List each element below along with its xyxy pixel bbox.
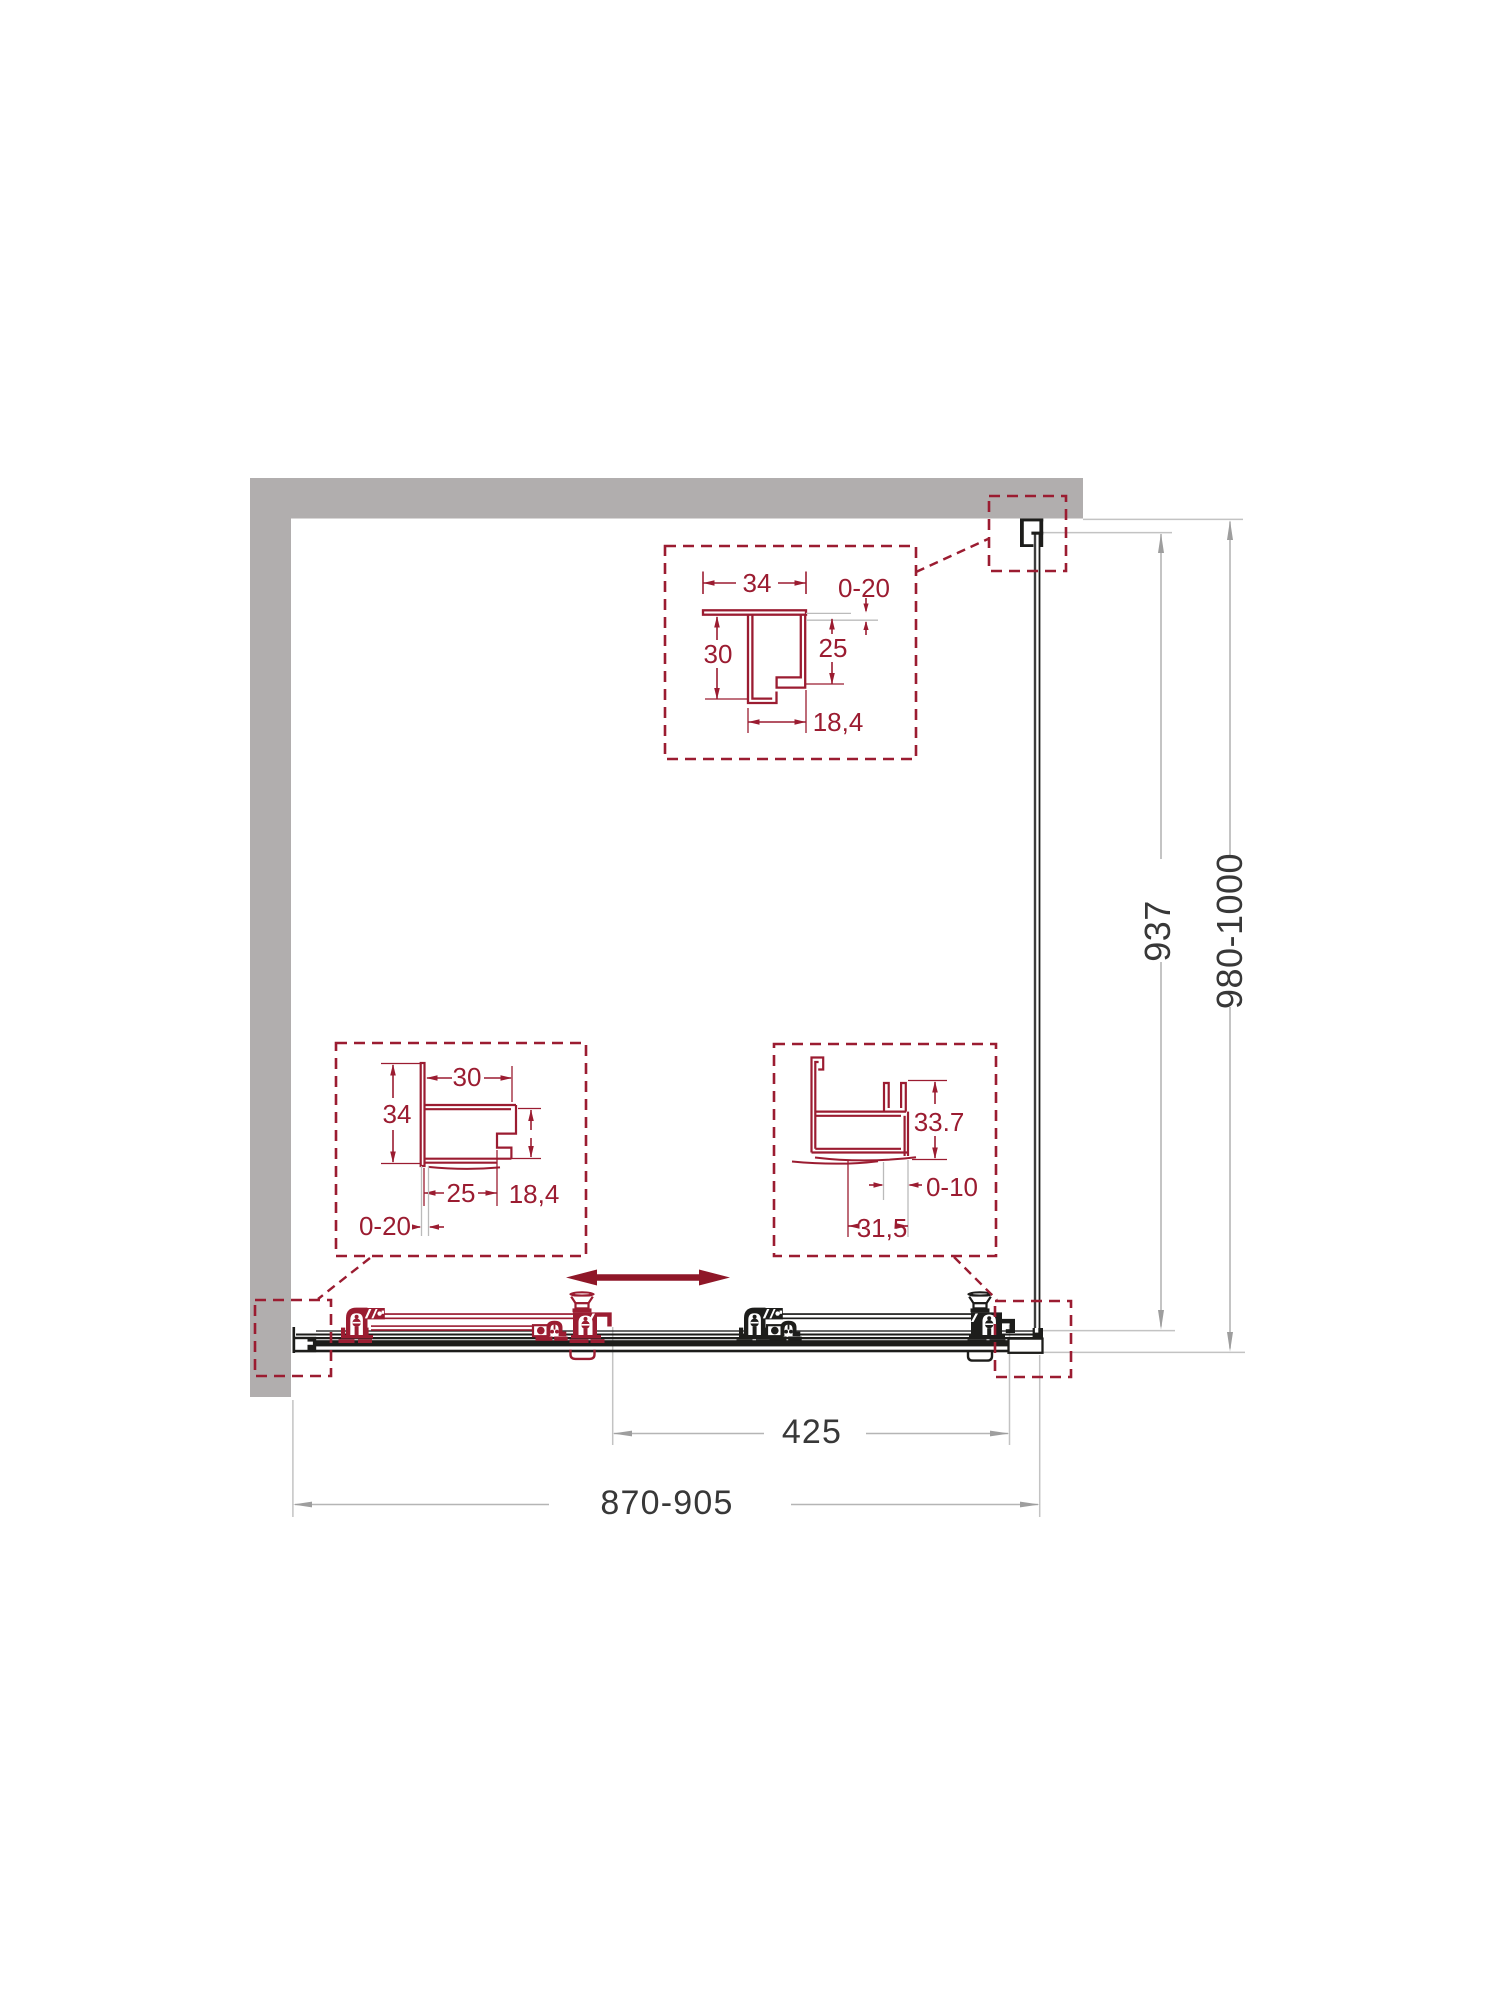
- svg-text:18,4: 18,4: [813, 707, 864, 737]
- svg-text:34: 34: [383, 1099, 412, 1129]
- svg-text:30: 30: [453, 1062, 482, 1092]
- svg-text:25: 25: [447, 1178, 476, 1208]
- svg-text:0-20: 0-20: [359, 1211, 411, 1241]
- svg-text:937: 937: [1137, 900, 1178, 962]
- svg-text:31,5: 31,5: [857, 1213, 908, 1243]
- svg-text:33.7: 33.7: [914, 1107, 965, 1137]
- svg-text:980-1000: 980-1000: [1209, 853, 1250, 1009]
- svg-text:0-10: 0-10: [926, 1172, 978, 1202]
- svg-text:0-20: 0-20: [838, 573, 890, 603]
- svg-text:30: 30: [704, 639, 733, 669]
- svg-text:18,4: 18,4: [509, 1179, 560, 1209]
- svg-text:34: 34: [743, 568, 772, 598]
- svg-text:425: 425: [782, 1413, 842, 1451]
- svg-text:25: 25: [819, 633, 848, 663]
- svg-text:870-905: 870-905: [600, 1484, 733, 1522]
